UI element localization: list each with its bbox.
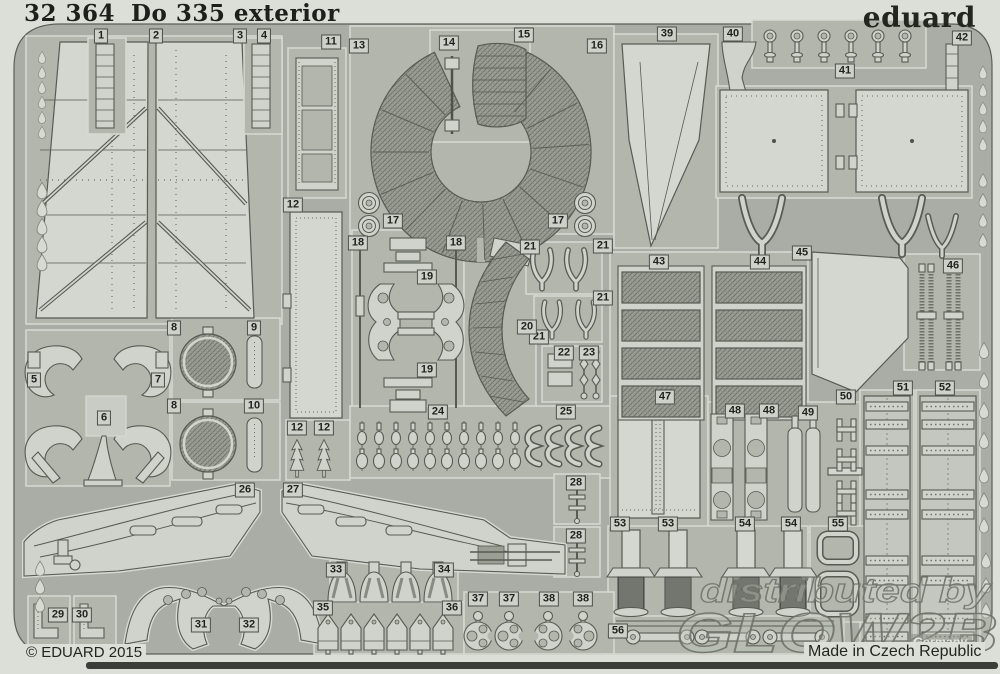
brand-logo: eduard [863,3,976,33]
part-30-tag: 30 [72,608,92,623]
part-56-tag: 56 [608,624,628,639]
part-14-tag: 14 [439,36,459,51]
part-55-tag: 55 [828,517,848,532]
sheet-code: 32 364 [24,0,115,27]
part-38-tag: 38 [573,592,593,607]
part-10-tag: 10 [244,399,264,414]
part-19-tag: 19 [417,363,437,378]
fret-sheet-graphic: distributed by GLOW2B Germany [0,0,1000,674]
part-28-tag: 28 [566,476,586,491]
part-48-tag: 48 [725,404,745,419]
part-32-tag: 32 [239,618,259,633]
part-2-3-wing-skin-panels [36,42,254,318]
part-6-tag: 6 [97,411,111,426]
part-15-mesh-leaf [472,43,527,126]
part-36-tag: 36 [442,601,462,616]
part-12-tag: 12 [314,421,334,436]
photoetch-sheet-photo: distributed by GLOW2B Germany 1234111314… [0,0,1000,674]
part-18-tag: 18 [446,236,466,251]
part-8-tag: 8 [167,321,181,336]
part-45-tag: 45 [792,246,812,261]
part-41-tag: 41 [835,64,855,79]
part-4-tag: 4 [257,29,271,44]
sheet-header: 32 364Do 335 exterior [24,1,340,27]
part-54-tag: 54 [781,517,801,532]
part-3-tag: 3 [233,29,247,44]
copyright-text: © EDUARD 2015 [22,644,146,662]
part-8-tag: 8 [167,399,181,414]
part-11-tag: 11 [321,35,341,50]
part-12-plain-panel [283,212,342,418]
part-51-tag: 51 [893,381,913,396]
part-24-tag: 24 [428,405,448,420]
part-2-tag: 2 [149,29,163,44]
part-25-tag: 25 [556,405,576,420]
part-37-tag: 37 [468,592,488,607]
part-48-tag: 48 [759,404,779,419]
part-17-tag: 17 [548,214,568,229]
sheet-title: Do 335 exterior [131,0,340,27]
part-23-tag: 23 [579,346,599,361]
part-39-tag: 39 [657,27,677,42]
part-12-tag: 12 [283,198,303,213]
part-53-tag: 53 [610,517,630,532]
made-in-text: Made in Czech Republic [804,642,985,661]
part-50-tag: 50 [836,390,856,405]
part-18-tag: 18 [348,236,368,251]
part-21-tag: 21 [520,240,540,255]
part-49-tag: 49 [798,406,818,421]
part-53-tag: 53 [658,517,678,532]
part-19-tag: 19 [417,270,437,285]
part-7-tag: 7 [151,373,165,388]
part-13-tag: 13 [349,39,369,54]
part-28-tag: 28 [566,529,586,544]
part-12-tag: 12 [287,421,307,436]
part-54-tag: 54 [735,517,755,532]
part-15-tag: 15 [514,28,534,43]
part-37-tag: 37 [499,592,519,607]
part-17-tag: 17 [383,214,403,229]
part-33-tag: 33 [326,563,346,578]
part-16-tag: 16 [587,39,607,54]
part-43-tag: 43 [649,255,669,270]
part-47-tag: 47 [655,390,675,405]
part-29-tag: 29 [48,608,68,623]
part-52-tag: 52 [935,381,955,396]
part-35-tag: 35 [313,601,333,616]
part-26-tag: 26 [235,483,255,498]
part-44-tag: 44 [750,255,770,270]
part-1-tag: 1 [94,29,108,44]
part-38-tag: 38 [539,592,559,607]
part-21-tag: 21 [593,291,613,306]
part-27-tag: 27 [283,483,303,498]
part-47-door-panel [618,406,700,518]
part-46-tag: 46 [943,259,963,274]
part-5-tag: 5 [27,373,41,388]
part-40-tag: 40 [723,27,743,42]
part-22-tag: 22 [554,346,574,361]
part-9-tag: 9 [247,321,261,336]
part-20-tag: 20 [517,320,537,335]
part-34-tag: 34 [434,563,454,578]
part-11-ladder-strip [296,58,338,190]
part-21-tag: 21 [593,239,613,254]
part-31-tag: 31 [191,618,211,633]
